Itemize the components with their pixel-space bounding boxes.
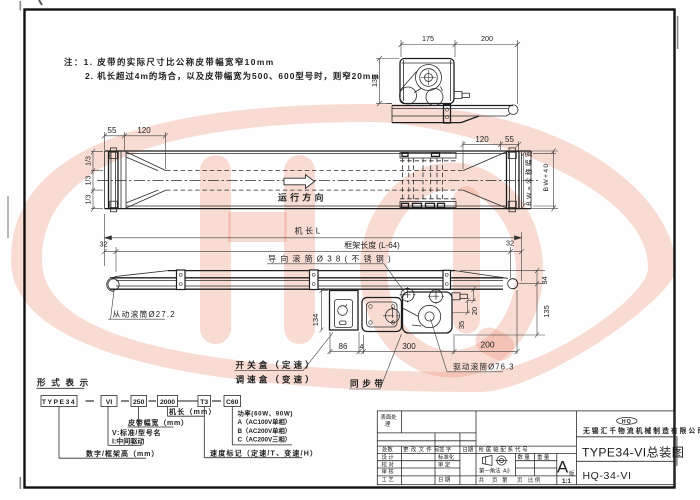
svg-text:日期: 日期: [463, 447, 474, 454]
svg-text:200: 200: [481, 34, 493, 43]
svg-text:135: 135: [542, 305, 551, 318]
svg-text:55: 55: [505, 135, 514, 144]
svg-text:页: 页: [492, 477, 498, 484]
svg-text:C（AC200V三相）: C（AC200V三相）: [238, 435, 292, 444]
svg-text:处数: 处数: [382, 446, 393, 454]
svg-text:135: 135: [370, 75, 379, 87]
svg-text:T3: T3: [200, 399, 208, 406]
svg-text:34: 34: [540, 276, 549, 284]
svg-text:页: 页: [517, 477, 523, 484]
svg-text:134: 134: [311, 314, 320, 327]
svg-text:审 定: 审 定: [438, 460, 451, 468]
svg-text:250: 250: [133, 399, 145, 406]
svg-text:32: 32: [506, 239, 514, 248]
svg-text:BW=公称幅宽: BW=公称幅宽: [524, 148, 533, 206]
svg-text:更改文件号: 更改文件号: [403, 446, 442, 454]
svg-text:第一角法: 第一角法: [479, 467, 501, 475]
svg-text:机长L: 机长L: [295, 226, 323, 236]
svg-text:第: 第: [502, 476, 508, 484]
svg-text:55: 55: [108, 126, 117, 135]
svg-text:日 期: 日 期: [438, 477, 450, 484]
svg-text:审 核: 审 核: [382, 468, 395, 476]
svg-text:功率(60W、90W): 功率(60W、90W): [238, 409, 294, 418]
svg-text:框架长度 (L-64): 框架长度 (L-64): [344, 240, 400, 250]
svg-text:20: 20: [470, 307, 479, 315]
svg-text:C60: C60: [226, 399, 239, 406]
svg-text:HQ-34-VI: HQ-34-VI: [583, 470, 632, 482]
svg-text:300: 300: [402, 342, 416, 351]
svg-text:形式表示: 形式表示: [37, 377, 94, 388]
svg-text:所属轴配系代号: 所属轴配系代号: [479, 446, 530, 454]
svg-text:设 计: 设 计: [382, 453, 395, 461]
svg-text:TYPE34-VI总装图: TYPE34-VI总装图: [582, 446, 684, 460]
svg-text:表面处: 表面处: [381, 413, 398, 421]
svg-text:32: 32: [99, 240, 107, 249]
svg-text:无锡汇千物流机械制造有限公司: 无锡汇千物流机械制造有限公司: [582, 426, 700, 435]
svg-text:200: 200: [480, 340, 494, 350]
svg-text:120: 120: [475, 135, 489, 144]
svg-text:A: A: [557, 458, 569, 477]
svg-text:驱动滚筒Ø76.3: 驱动滚筒Ø76.3: [453, 362, 514, 372]
svg-text:86: 86: [339, 342, 348, 351]
svg-text:比 例: 比 例: [528, 476, 540, 484]
svg-text:2. 机长超过4m的场合，以及皮带幅宽为500、600型号时: 2. 机长超过4m的场合，以及皮带幅宽为500、600型号时，则窄20mm: [85, 71, 380, 81]
svg-text:HQ: HQ: [622, 419, 632, 425]
svg-text:B（AC200V单相）: B（AC200V单相）: [238, 426, 292, 435]
svg-text:A3: A3: [503, 469, 510, 475]
svg-text:注：1. 皮带的实际尺寸比公称皮带幅宽窄10mm: 注：1. 皮带的实际尺寸比公称皮带幅宽窄10mm: [64, 57, 275, 67]
svg-text:调速盒（变速）: 调速盒（变速）: [236, 374, 317, 385]
svg-text:签 字: 签 字: [439, 446, 451, 454]
svg-text:工 艺: 工 艺: [382, 477, 395, 484]
svg-text:1/3: 1/3: [86, 156, 93, 166]
svg-text:重 量: 重 量: [537, 453, 550, 461]
svg-text:BW+40: BW+40: [543, 163, 550, 192]
svg-text:120: 120: [137, 126, 151, 135]
svg-text:4: 4: [360, 344, 364, 351]
svg-text:1/3: 1/3: [86, 176, 93, 186]
svg-text:运行方向: 运行方向: [278, 192, 327, 203]
svg-text:A（AC100V单相）: A（AC100V单相）: [238, 417, 292, 426]
svg-text:I:中间驱动: I:中间驱动: [112, 437, 144, 446]
svg-text:V:标准/型号名: V:标准/型号名: [112, 428, 161, 437]
svg-text:从动滚筒Ø27.2: 从动滚筒Ø27.2: [113, 309, 176, 319]
svg-text:机长（mm）: 机长（mm）: [169, 407, 217, 416]
svg-text:共: 共: [479, 476, 485, 484]
svg-text:理: 理: [385, 421, 391, 428]
svg-text:1/3: 1/3: [86, 195, 93, 205]
svg-text:数字/框架高（mm）: 数字/框架高（mm）: [86, 449, 159, 458]
svg-text:2000: 2000: [160, 399, 175, 406]
svg-text:TYPE34: TYPE34: [42, 399, 76, 406]
svg-text:数 量: 数 量: [518, 453, 531, 461]
svg-text:版: 版: [569, 470, 575, 478]
svg-text:35: 35: [457, 321, 466, 329]
svg-text:VI: VI: [106, 399, 113, 406]
svg-text:速度标记（定速/T、变速/H）: 速度标记（定速/T、变速/H）: [210, 449, 318, 458]
svg-text:校 对: 校 对: [382, 460, 395, 468]
svg-text:标准化: 标准化: [438, 453, 455, 461]
svg-text:导向滚筒Ø38(不锈钢): 导向滚筒Ø38(不锈钢): [268, 254, 395, 264]
svg-text:175: 175: [422, 34, 434, 43]
svg-text:1:1: 1:1: [562, 478, 572, 485]
svg-text:皮带幅宽（mm）: 皮带幅宽（mm）: [127, 418, 189, 427]
